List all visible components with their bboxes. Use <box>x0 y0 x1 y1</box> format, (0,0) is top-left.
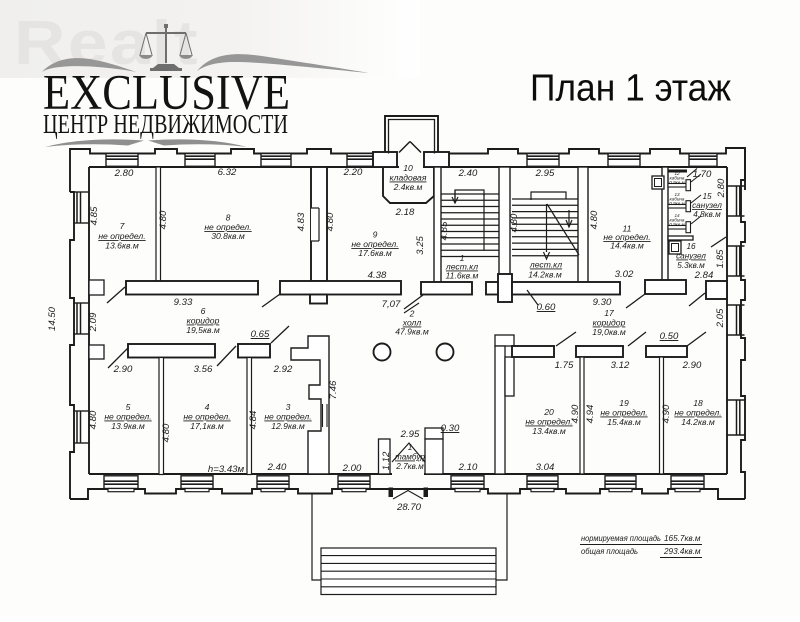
svg-text:2.92: 2.92 <box>273 364 293 375</box>
svg-text:4.80: 4.80 <box>158 210 169 229</box>
svg-text:4.90: 4.90 <box>570 404 581 423</box>
svg-text:4.8кв.м: 4.8кв.м <box>693 210 721 219</box>
svg-text:17: 17 <box>604 308 615 318</box>
svg-text:1.12: 1.12 <box>381 451 392 470</box>
svg-text:не определ.: не определ. <box>98 231 145 241</box>
svg-text:не определ.: не определ. <box>674 408 721 418</box>
svg-text:4.38: 4.38 <box>368 270 387 281</box>
svg-text:17.6кв.м: 17.6кв.м <box>358 248 392 258</box>
svg-text:0.65: 0.65 <box>251 329 270 340</box>
svg-text:1.70: 1.70 <box>693 169 712 180</box>
svg-text:4.80: 4.80 <box>161 423 172 442</box>
svg-text:коридор: коридор <box>187 316 220 326</box>
svg-text:лест.кл: лест.кл <box>529 260 562 270</box>
svg-text:0.9кв.м: 0.9кв.м <box>669 180 685 185</box>
svg-text:10: 10 <box>403 163 413 173</box>
svg-text:3: 3 <box>286 402 291 412</box>
svg-text:3.12: 3.12 <box>611 360 630 371</box>
svg-text:4.94: 4.94 <box>585 405 596 424</box>
svg-text:7,07: 7,07 <box>382 299 401 310</box>
svg-text:3.04: 3.04 <box>536 462 555 473</box>
svg-text:47.9кв.м: 47.9кв.м <box>395 327 429 337</box>
svg-text:17,1кв.м: 17,1кв.м <box>190 421 224 431</box>
svg-text:5: 5 <box>126 402 131 412</box>
svg-text:0.9кв.м: 0.9кв.м <box>669 201 685 206</box>
svg-text:не определ.: не определ. <box>183 412 230 422</box>
svg-text:9.30: 9.30 <box>593 297 612 308</box>
svg-text:ЦЕНТР НЕДВИЖИМОСТИ: ЦЕНТР НЕДВИЖИМОСТИ <box>43 108 288 139</box>
svg-text:2.40: 2.40 <box>267 462 287 473</box>
svg-text:2.40: 2.40 <box>458 168 478 179</box>
svg-text:3.56: 3.56 <box>194 364 213 375</box>
svg-text:11.6кв.м: 11.6кв.м <box>446 271 479 281</box>
svg-text:2.7кв.м: 2.7кв.м <box>395 462 424 471</box>
svg-text:4.80: 4.80 <box>88 410 99 429</box>
svg-text:7.46: 7.46 <box>328 380 339 399</box>
svg-text:кладовая: кладовая <box>390 173 427 183</box>
svg-text:19,0кв.м: 19,0кв.м <box>592 327 626 337</box>
svg-text:не определ.: не определ. <box>600 408 647 418</box>
svg-text:3.02: 3.02 <box>615 269 634 280</box>
svg-text:14.50: 14.50 <box>47 306 58 331</box>
svg-text:16: 16 <box>686 242 696 251</box>
svg-text:2.4кв.м: 2.4кв.м <box>393 182 423 192</box>
svg-text:6: 6 <box>201 306 206 316</box>
svg-text:0.30: 0.30 <box>441 423 460 434</box>
svg-text:28.70: 28.70 <box>396 502 422 513</box>
svg-text:2.95: 2.95 <box>535 168 555 179</box>
svg-text:1: 1 <box>408 443 413 452</box>
svg-text:2.90: 2.90 <box>682 360 702 371</box>
svg-text:4.83: 4.83 <box>296 212 307 231</box>
svg-text:2.84: 2.84 <box>694 270 714 281</box>
svg-text:1.75: 1.75 <box>555 360 574 371</box>
svg-text:30.8кв.м: 30.8кв.м <box>211 231 245 241</box>
svg-text:общая площадь: общая площадь <box>581 547 638 556</box>
svg-text:2.05: 2.05 <box>715 308 726 328</box>
svg-text:2.80: 2.80 <box>716 178 727 198</box>
svg-text:4.90: 4.90 <box>661 404 672 423</box>
svg-text:0.60: 0.60 <box>537 302 556 313</box>
svg-text:не определ.: не определ. <box>525 417 572 427</box>
svg-text:15: 15 <box>702 192 712 201</box>
svg-text:4: 4 <box>205 402 210 412</box>
svg-text:0.50: 0.50 <box>660 331 679 342</box>
svg-text:15.4кв.м: 15.4кв.м <box>607 417 641 427</box>
svg-text:не определ.: не определ. <box>104 412 151 422</box>
svg-text:4.80: 4.80 <box>509 213 520 232</box>
svg-text:2.20: 2.20 <box>343 167 363 178</box>
svg-text:6.32: 6.32 <box>218 167 237 178</box>
svg-text:2.09: 2.09 <box>88 312 99 332</box>
svg-text:18: 18 <box>693 398 703 408</box>
svg-text:0.9кв.м: 0.9кв.м <box>669 222 685 227</box>
svg-text:13.6кв.м: 13.6кв.м <box>105 241 139 251</box>
svg-text:2.95: 2.95 <box>400 429 420 440</box>
svg-text:тамбур: тамбур <box>395 453 425 462</box>
svg-text:2.00: 2.00 <box>342 463 362 474</box>
svg-text:165.7кв.м: 165.7кв.м <box>664 534 701 543</box>
svg-text:4.85: 4.85 <box>439 221 450 240</box>
svg-text:нормируемая площадь: нормируемая площадь <box>581 534 661 543</box>
svg-text:не определ.: не определ. <box>264 412 311 422</box>
svg-text:14.2кв.м: 14.2кв.м <box>681 417 715 427</box>
svg-text:293.4кв.м: 293.4кв.м <box>663 547 701 556</box>
svg-text:2.10: 2.10 <box>458 462 478 473</box>
svg-text:4.84: 4.84 <box>248 411 259 430</box>
svg-text:14.2кв.м: 14.2кв.м <box>528 270 562 280</box>
svg-text:9: 9 <box>373 230 378 240</box>
svg-text:санузел: санузел <box>676 252 706 261</box>
svg-text:1.85: 1.85 <box>715 249 726 268</box>
svg-text:3.25: 3.25 <box>415 236 426 255</box>
svg-text:4.80: 4.80 <box>325 212 336 231</box>
svg-text:2.90: 2.90 <box>113 364 133 375</box>
svg-text:санузел: санузел <box>692 201 722 210</box>
svg-text:13.4кв.м: 13.4кв.м <box>532 426 566 436</box>
svg-text:19: 19 <box>619 398 629 408</box>
svg-text:9.33: 9.33 <box>174 297 193 308</box>
svg-text:13.9кв.м: 13.9кв.м <box>111 421 145 431</box>
svg-text:20: 20 <box>543 407 554 417</box>
svg-text:4.80: 4.80 <box>589 210 600 229</box>
svg-text:14.4кв.м: 14.4кв.м <box>610 241 644 251</box>
svg-text:План 1 этаж: План 1 этаж <box>530 68 732 110</box>
svg-text:h=3.43м: h=3.43м <box>208 464 245 475</box>
svg-text:2.80: 2.80 <box>114 168 134 179</box>
svg-text:4.85: 4.85 <box>89 206 100 225</box>
svg-text:12.9кв.м: 12.9кв.м <box>271 421 305 431</box>
svg-text:2.18: 2.18 <box>395 207 415 218</box>
svg-text:5.3кв.м: 5.3кв.м <box>677 261 705 270</box>
svg-text:19,5кв.м: 19,5кв.м <box>186 325 220 335</box>
svg-text:8: 8 <box>226 213 231 223</box>
svg-text:коридор: коридор <box>593 318 626 328</box>
